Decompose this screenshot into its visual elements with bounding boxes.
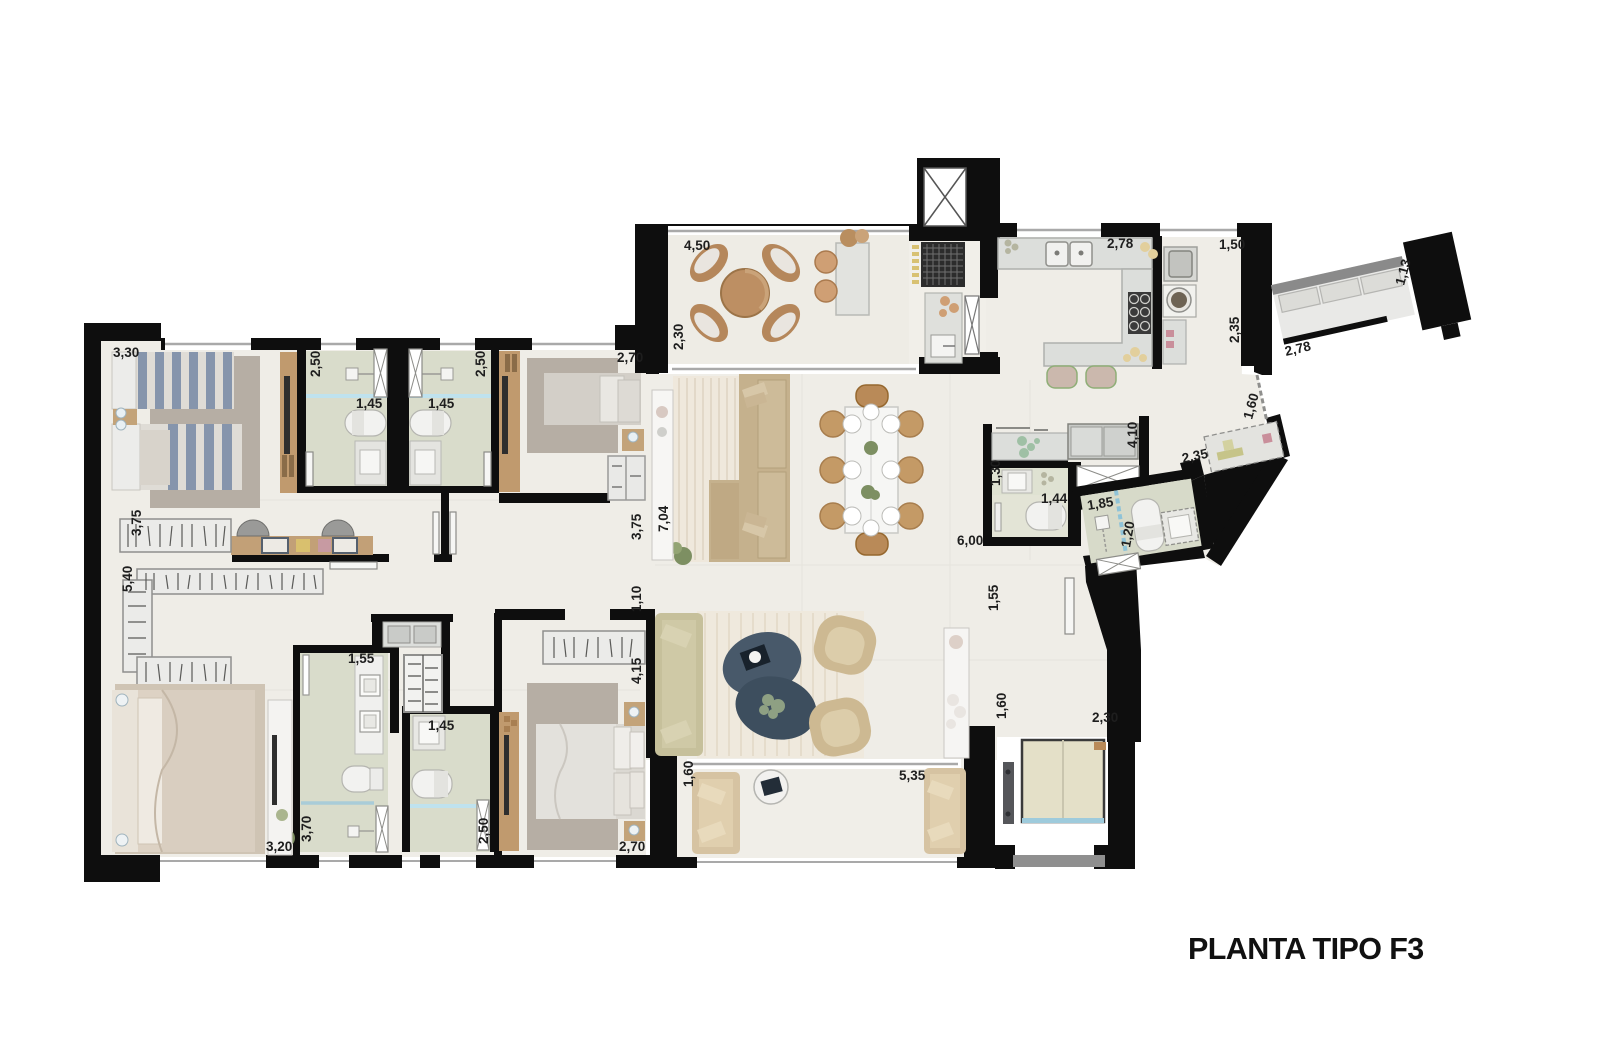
svg-text:1,44: 1,44	[1041, 491, 1068, 506]
svg-text:2,70: 2,70	[619, 839, 645, 854]
svg-text:4,15: 4,15	[629, 657, 644, 684]
svg-text:2,35: 2,35	[1227, 316, 1242, 343]
svg-text:PLANTA TIPO F3: PLANTA TIPO F3	[1188, 932, 1424, 966]
svg-text:3,75: 3,75	[129, 509, 144, 536]
svg-text:4,50: 4,50	[684, 238, 710, 253]
svg-text:1,60: 1,60	[681, 761, 696, 787]
svg-text:5,35: 5,35	[899, 768, 926, 783]
svg-text:1,55: 1,55	[348, 651, 375, 666]
svg-text:6,00: 6,00	[957, 533, 983, 548]
svg-text:4,10: 4,10	[1125, 422, 1140, 448]
svg-text:1,30: 1,30	[988, 460, 1003, 486]
svg-text:2,50: 2,50	[476, 818, 491, 844]
svg-text:1,60: 1,60	[994, 693, 1009, 719]
svg-text:7,04: 7,04	[656, 505, 671, 532]
svg-text:1,45: 1,45	[356, 396, 383, 411]
svg-text:5,40: 5,40	[120, 566, 135, 592]
svg-text:1,50: 1,50	[1219, 237, 1245, 252]
svg-text:3,70: 3,70	[299, 816, 314, 842]
svg-text:1,10: 1,10	[629, 586, 644, 612]
svg-text:2,30: 2,30	[671, 324, 686, 350]
svg-text:1,45: 1,45	[428, 718, 455, 733]
svg-text:2,50: 2,50	[308, 351, 323, 377]
svg-text:3,20: 3,20	[266, 839, 292, 854]
svg-text:2,70: 2,70	[617, 350, 643, 365]
svg-text:2,50: 2,50	[473, 351, 488, 377]
svg-text:2,30: 2,30	[1092, 710, 1118, 725]
svg-text:1,45: 1,45	[428, 396, 455, 411]
svg-text:3,75: 3,75	[629, 513, 644, 540]
svg-text:3,30: 3,30	[113, 345, 139, 360]
svg-text:2,78: 2,78	[1107, 236, 1134, 251]
svg-text:1,55: 1,55	[986, 584, 1001, 611]
